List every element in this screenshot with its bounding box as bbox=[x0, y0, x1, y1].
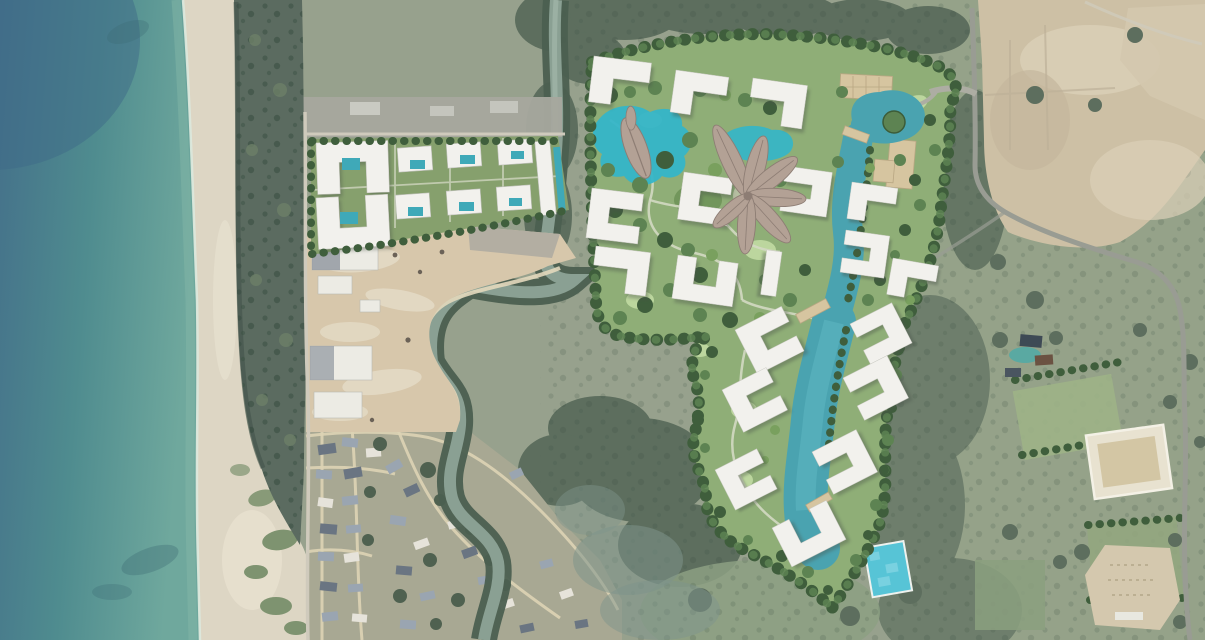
satellite-map bbox=[0, 0, 1205, 640]
screenshot bbox=[0, 0, 1205, 640]
walled-compound bbox=[1086, 425, 1172, 499]
coast bbox=[0, 0, 309, 640]
bare-strip bbox=[300, 97, 565, 137]
cleared-land bbox=[978, 0, 1205, 247]
island-tree bbox=[883, 111, 905, 133]
